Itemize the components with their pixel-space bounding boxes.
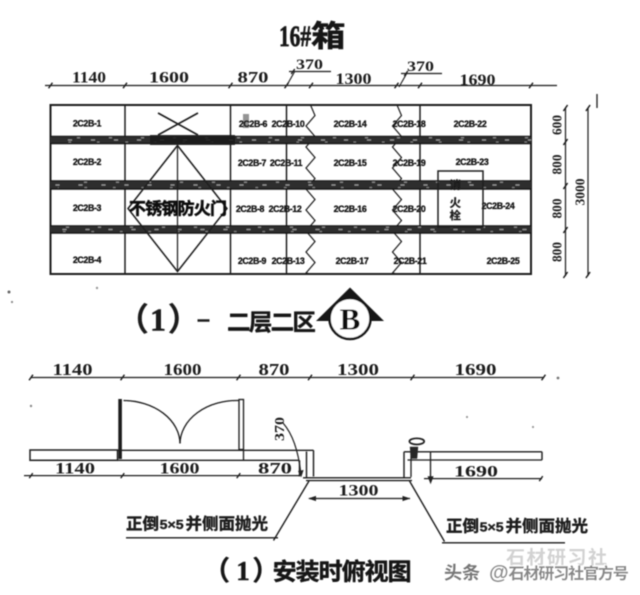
svg-text:800: 800 [551, 199, 566, 219]
svg-text:1300: 1300 [337, 360, 379, 379]
svg-text:2C2B-25: 2C2B-25 [487, 256, 520, 266]
svg-text:2C2B-22: 2C2B-22 [454, 119, 487, 129]
svg-text:1140: 1140 [72, 70, 106, 87]
svg-text:870: 870 [258, 460, 292, 477]
svg-text:1140: 1140 [53, 360, 93, 379]
svg-text:2C2B-14: 2C2B-14 [334, 119, 367, 129]
svg-text:1: 1 [236, 556, 250, 586]
svg-text:2C2B-15: 2C2B-15 [334, 158, 367, 168]
svg-text:2C2B-23: 2C2B-23 [456, 157, 489, 167]
svg-text:800: 800 [551, 155, 566, 175]
svg-text:1690: 1690 [454, 463, 498, 480]
svg-text:2C2B-12: 2C2B-12 [269, 204, 302, 214]
svg-text:870: 870 [259, 360, 290, 379]
svg-text:@: @ [489, 562, 509, 584]
svg-text:1140: 1140 [55, 460, 95, 477]
svg-text:2C2B-16: 2C2B-16 [334, 204, 367, 214]
svg-text:B: B [340, 302, 361, 337]
svg-text:1300: 1300 [336, 71, 372, 88]
svg-text:1600: 1600 [164, 360, 202, 379]
svg-text:5×5: 5×5 [160, 517, 184, 532]
svg-text:2C2B-8: 2C2B-8 [236, 204, 265, 214]
svg-text:16#: 16# [279, 20, 311, 53]
svg-text:2C2B-11: 2C2B-11 [270, 158, 303, 168]
svg-text:5×5: 5×5 [480, 519, 504, 534]
svg-text:2C2B-2: 2C2B-2 [73, 157, 102, 167]
svg-text:2C2B-18: 2C2B-18 [393, 119, 426, 129]
svg-text:1: 1 [150, 302, 166, 338]
svg-text:2C2B-3: 2C2B-3 [73, 203, 102, 213]
svg-text:2C2B-4: 2C2B-4 [73, 255, 102, 265]
svg-text:2C2B-17: 2C2B-17 [336, 256, 369, 266]
svg-text:1600: 1600 [160, 460, 200, 477]
svg-text:1690: 1690 [460, 72, 496, 89]
svg-text:800: 800 [551, 242, 566, 262]
svg-text:1600: 1600 [149, 70, 189, 87]
svg-text:2C2B-21: 2C2B-21 [394, 256, 427, 266]
svg-text:1690: 1690 [455, 360, 497, 379]
svg-text:2C2B-24: 2C2B-24 [482, 201, 515, 211]
svg-text:2C2B-19: 2C2B-19 [393, 158, 426, 168]
svg-text:2C2B-20: 2C2B-20 [393, 204, 426, 214]
svg-text:2C2B-9: 2C2B-9 [238, 256, 267, 266]
svg-text:2C2B-1: 2C2B-1 [73, 119, 102, 129]
svg-text:1300: 1300 [339, 483, 379, 500]
svg-text:3000: 3000 [574, 179, 589, 206]
svg-text:870: 870 [238, 70, 269, 87]
svg-text:2C2B-13: 2C2B-13 [272, 256, 305, 266]
svg-text:2C2B-10: 2C2B-10 [272, 119, 305, 129]
svg-text:370: 370 [272, 417, 287, 441]
svg-text:370: 370 [407, 59, 434, 75]
svg-text:600: 600 [551, 115, 566, 135]
svg-text:370: 370 [296, 57, 323, 73]
svg-text:2C2B-7: 2C2B-7 [238, 158, 267, 168]
